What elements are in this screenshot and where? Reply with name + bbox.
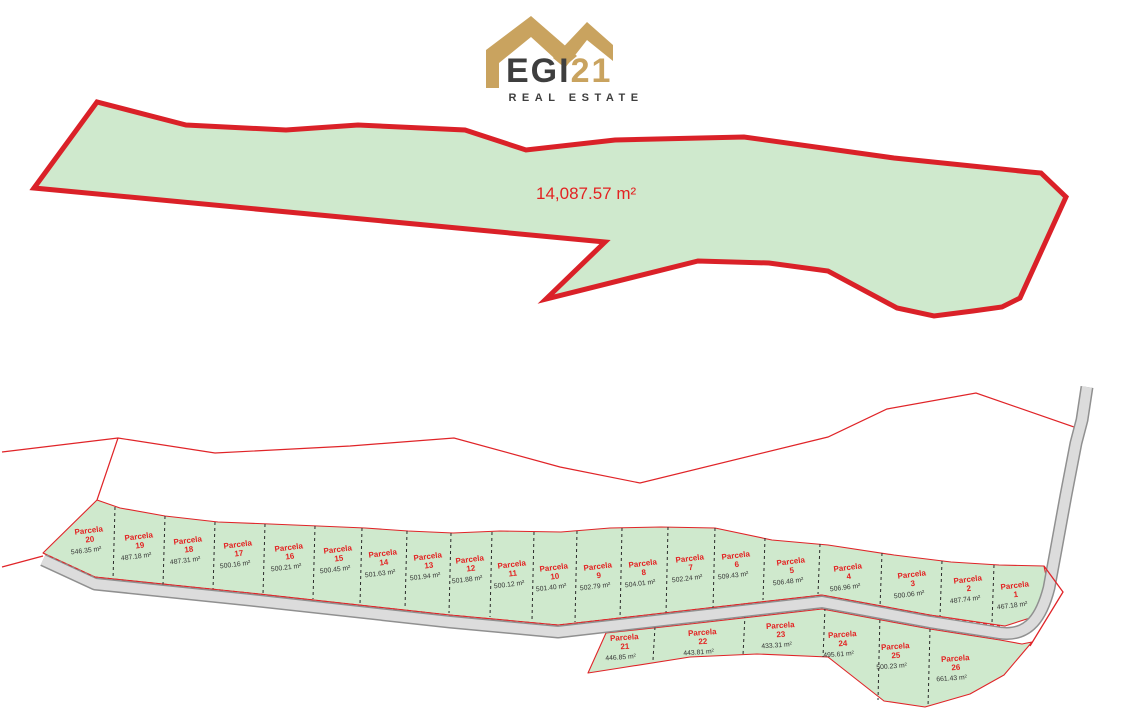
main-plot-polygon xyxy=(34,102,1066,316)
boundary-connector xyxy=(97,438,118,500)
cadastral-map xyxy=(0,0,1122,722)
plan-canvas: EGI21 REAL ESTATE xyxy=(0,0,1122,722)
plot-area-label: 14,087.57 m² xyxy=(536,184,666,204)
boundary-left-segment xyxy=(2,556,43,567)
parcel-strip-top-row xyxy=(43,500,1048,626)
